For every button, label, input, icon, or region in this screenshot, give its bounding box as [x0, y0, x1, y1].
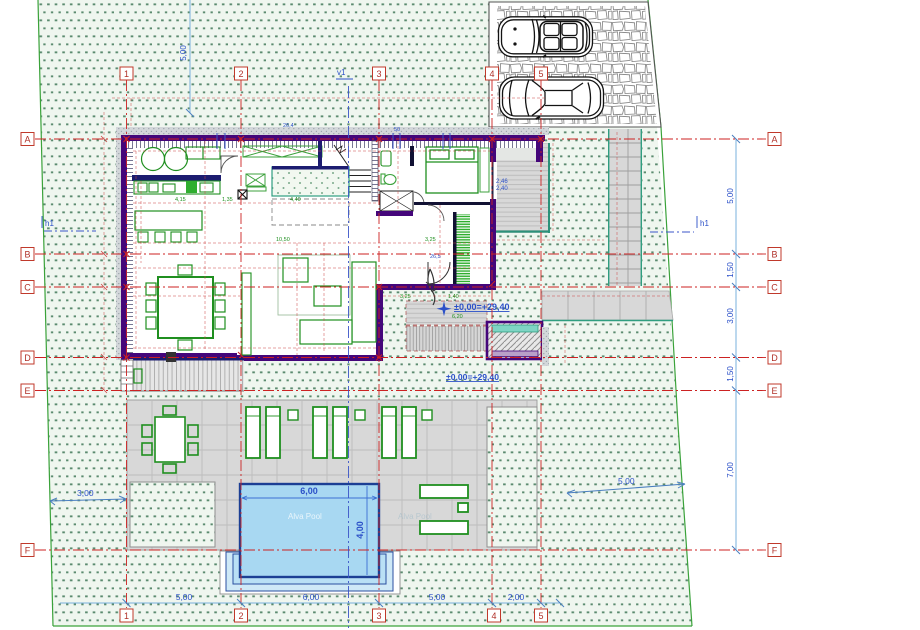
svg-text:A: A: [24, 135, 30, 145]
svg-text:2,40: 2,40: [496, 186, 508, 192]
svg-text:3,00: 3,00: [77, 488, 94, 498]
svg-text:26,4: 26,4: [283, 123, 294, 129]
svg-text:2,46: 2,46: [496, 179, 508, 185]
svg-text:1,40: 1,40: [448, 294, 459, 300]
svg-text:D: D: [771, 353, 778, 363]
svg-text:26,5: 26,5: [430, 254, 441, 260]
svg-text:v1: v1: [337, 68, 346, 77]
svg-text:5,00: 5,00: [179, 45, 188, 61]
svg-text:6,20: 6,20: [452, 314, 463, 320]
svg-text:A: A: [771, 135, 777, 145]
svg-text:6,00: 6,00: [300, 486, 318, 496]
svg-text:1,50: 1,50: [726, 366, 735, 382]
svg-text:5: 5: [538, 69, 543, 79]
svg-text:Alva Pool: Alva Pool: [398, 512, 432, 521]
svg-text:4: 4: [491, 611, 496, 621]
svg-text:h1: h1: [45, 219, 54, 228]
svg-text:50: 50: [394, 127, 400, 133]
svg-text:E: E: [24, 386, 30, 396]
svg-text:1: 1: [124, 611, 129, 621]
svg-text:F: F: [25, 546, 31, 556]
svg-text:B: B: [24, 250, 30, 260]
svg-text:2: 2: [238, 611, 243, 621]
svg-text:10,50: 10,50: [276, 237, 290, 243]
svg-text:4,00: 4,00: [355, 521, 365, 539]
svg-text:3: 3: [376, 611, 381, 621]
svg-text:5,00: 5,00: [429, 592, 446, 602]
svg-text:3,25: 3,25: [425, 237, 436, 243]
svg-text:C: C: [24, 283, 31, 293]
svg-text:±0,00=+29,40: ±0,00=+29,40: [454, 302, 510, 312]
svg-text:±0,00=+29,40: ±0,00=+29,40: [446, 372, 499, 382]
svg-text:3,00: 3,00: [726, 308, 735, 324]
svg-text:D: D: [24, 353, 31, 363]
svg-text:1,50: 1,50: [726, 262, 735, 278]
svg-text:B: B: [771, 250, 777, 260]
svg-text:5: 5: [538, 611, 543, 621]
svg-text:3,25: 3,25: [400, 294, 411, 300]
svg-text:5,00: 5,00: [618, 476, 635, 486]
svg-text:1,35: 1,35: [222, 197, 233, 203]
svg-text:h1: h1: [700, 219, 709, 228]
svg-text:3: 3: [376, 69, 381, 79]
svg-text:2,00: 2,00: [508, 592, 525, 602]
svg-text:Alva Pool: Alva Pool: [288, 512, 322, 521]
svg-text:5,00: 5,00: [176, 592, 193, 602]
svg-text:4: 4: [489, 69, 494, 79]
svg-text:4,15: 4,15: [175, 197, 186, 203]
svg-text:5,00: 5,00: [726, 188, 735, 204]
svg-text:4,40: 4,40: [290, 197, 301, 203]
svg-text:F: F: [772, 546, 778, 556]
svg-text:E: E: [771, 386, 777, 396]
svg-text:6,00: 6,00: [303, 592, 320, 602]
svg-text:1: 1: [124, 69, 129, 79]
svg-text:2: 2: [238, 69, 243, 79]
svg-text:7,00: 7,00: [726, 462, 735, 478]
svg-text:C: C: [771, 283, 778, 293]
